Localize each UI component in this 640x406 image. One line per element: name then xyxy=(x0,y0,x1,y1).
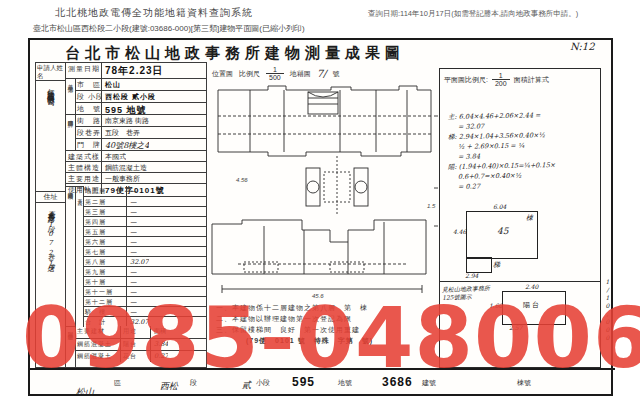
floor-value: — xyxy=(127,237,137,246)
lot-value: 595 地號 xyxy=(102,103,147,114)
floor-value: — xyxy=(127,227,137,236)
city-district-row: 市 區 松山 xyxy=(75,78,207,90)
floor-plan-drawing: 4.56 45.6 1.5 xyxy=(208,76,438,301)
unit-sketch-box: 6.04 4.46 45 棟 xyxy=(466,211,538,259)
survey-date-label: 測量日期 xyxy=(66,63,102,78)
floor-label: 第四層 xyxy=(83,217,127,226)
structure-value: 鋼筋混凝土造 xyxy=(102,162,147,172)
floor-value: — xyxy=(127,247,137,256)
lot-label: 地 號 xyxy=(75,103,102,114)
building-style-row: 建築式樣 本國式 xyxy=(66,150,207,161)
floor-label: 第二層 xyxy=(83,197,127,206)
lane-row: 段巷弄 五段 巷弄 xyxy=(75,126,207,138)
plan-scale-denominator: 200 xyxy=(492,80,510,87)
plan-dim-1: 4.56 xyxy=(236,177,248,183)
plan-scale-numerator: 1 xyxy=(492,72,510,80)
floor-label: 第九層 xyxy=(83,267,127,276)
floor-row: 第七層— xyxy=(83,246,207,256)
phone-watermark: 0985-048006 xyxy=(22,296,640,380)
usage-row: 主要用途 一般事務所 xyxy=(66,172,207,183)
building-style-label: 建築式樣 xyxy=(66,151,102,161)
document-line: 臺北市松山區西松段二小段(建號:03686-000)[第三類]建物平面圖(已縮小… xyxy=(33,23,305,34)
floor-row: 第八層32.07 xyxy=(83,256,207,266)
page-number-note: N:12 xyxy=(570,41,595,52)
sheet-title: 台北市松山地政事務所建物測量成果圖 xyxy=(65,44,405,63)
section-value: 西松段 貳小段 xyxy=(102,91,156,102)
section-label: 段 小段 xyxy=(75,91,102,102)
applicant-name: 仁普建設股份有限公司 xyxy=(46,83,56,191)
floor-value: 32.07 xyxy=(127,257,149,266)
door-number-value: 40號8樓之4 xyxy=(102,139,149,150)
lot-row: 地 號 595 地號 xyxy=(75,102,207,114)
street-row: 街 路 南京東路 街路 xyxy=(75,114,207,126)
scale-numerator: 1 xyxy=(266,66,284,74)
lane-value: 五段 巷弄 xyxy=(102,127,140,138)
survey-date-value: 78年2.23日 xyxy=(102,63,164,78)
lane-label: 段巷弄 xyxy=(75,127,102,138)
unit-sketch-dim-left: 4.46 xyxy=(453,228,466,235)
calc-line: = 0.27 xyxy=(448,180,555,192)
building-style-value: 本國式 xyxy=(102,151,126,161)
structure-row: 主體構造 鋼筋混凝土造 xyxy=(66,161,207,172)
plan-scale-fraction: 1 200 xyxy=(492,72,510,87)
area-calculations: 主: 6.04×4.46+2.06×2.44 = = 32.07 梯: 2.94… xyxy=(448,111,555,191)
floor-label: 第五層 xyxy=(83,227,127,236)
floor-row: 第三層— xyxy=(83,206,207,216)
unit-sketch-number: 45 xyxy=(497,226,508,236)
street-value: 南京東路 街路 xyxy=(102,115,149,126)
floor-value: — xyxy=(127,217,137,226)
floor-value: — xyxy=(127,277,137,286)
floor-row: 第五層— xyxy=(83,226,207,236)
survey-date-row: 測量日期 78年2.23日 xyxy=(66,63,207,78)
plan-scale-row: 平面圖比例尺: 1 200 面積計算式 xyxy=(444,72,549,87)
section-row: 段 小段 西松段 貳小段 xyxy=(75,90,207,102)
floor-value: — xyxy=(127,207,137,216)
applicant-name-label: 申請人姓名 xyxy=(36,63,65,81)
stair-label: 梯 xyxy=(493,260,500,270)
usage-label: 主要用途 xyxy=(66,173,102,183)
area-calc-title: 面積計算式 xyxy=(514,75,549,85)
floor-row: 第六層— xyxy=(83,236,207,246)
site-group-label: 基地坐落 xyxy=(66,78,76,115)
floor-label: 第八層 xyxy=(83,257,127,266)
floor-value: — xyxy=(127,197,137,206)
query-date: 查詢日期:114年10月17日(如需登記謄本,請向地政事務所申請。) xyxy=(368,9,578,19)
floor-label: 第七層 xyxy=(83,247,127,256)
unit-sketch-corner-label: 棟 xyxy=(526,213,533,223)
district-value: 松山 xyxy=(76,386,94,399)
floor-row: 第十層— xyxy=(83,276,207,286)
address-label: 住址 xyxy=(36,191,65,203)
stair-sketch-box: 梯 2.94 xyxy=(466,257,492,273)
system-title: 北北桃地政電傳全功能地籍資料查詢系統 xyxy=(55,6,253,20)
city-district-value: 松山 xyxy=(102,79,121,90)
structure-label: 主體構造 xyxy=(66,162,102,172)
floor-row: 第四層— xyxy=(83,216,207,226)
scanned-cadastral-document-page: 北北桃地政電傳全功能地籍資料查詢系統 查詢日期:114年10月17日(如需登記謄… xyxy=(0,0,640,406)
floor-label: 第三層 xyxy=(83,207,127,216)
floor-row: 第二層— xyxy=(83,196,207,206)
floor-value: — xyxy=(127,186,137,196)
floor-row: 地面層— xyxy=(83,186,207,196)
floor-value: — xyxy=(127,267,137,276)
floor-label: 第六層 xyxy=(83,237,127,246)
door-number-row: 門 牌 40號8樓之4 xyxy=(75,138,207,150)
door-group-label: 建物門牌 xyxy=(66,114,76,151)
city-district-label: 市 區 xyxy=(75,79,102,90)
floor-label: 地面層 xyxy=(83,186,127,196)
stair-dim: 2.94 xyxy=(465,272,478,279)
door-number-label: 門 牌 xyxy=(75,139,102,150)
floor-row: 第九層— xyxy=(83,266,207,276)
street-label: 街 路 xyxy=(75,115,102,126)
plan-scale-label: 平面圖比例尺: xyxy=(444,75,488,85)
panel-divider xyxy=(440,281,600,282)
usage-value: 一般事務所 xyxy=(102,173,140,183)
floor-label: 第十層 xyxy=(83,277,127,286)
unit-sketch-dim-top: 6.04 xyxy=(493,203,506,210)
plan-dim-3: 1.5 xyxy=(427,203,436,209)
